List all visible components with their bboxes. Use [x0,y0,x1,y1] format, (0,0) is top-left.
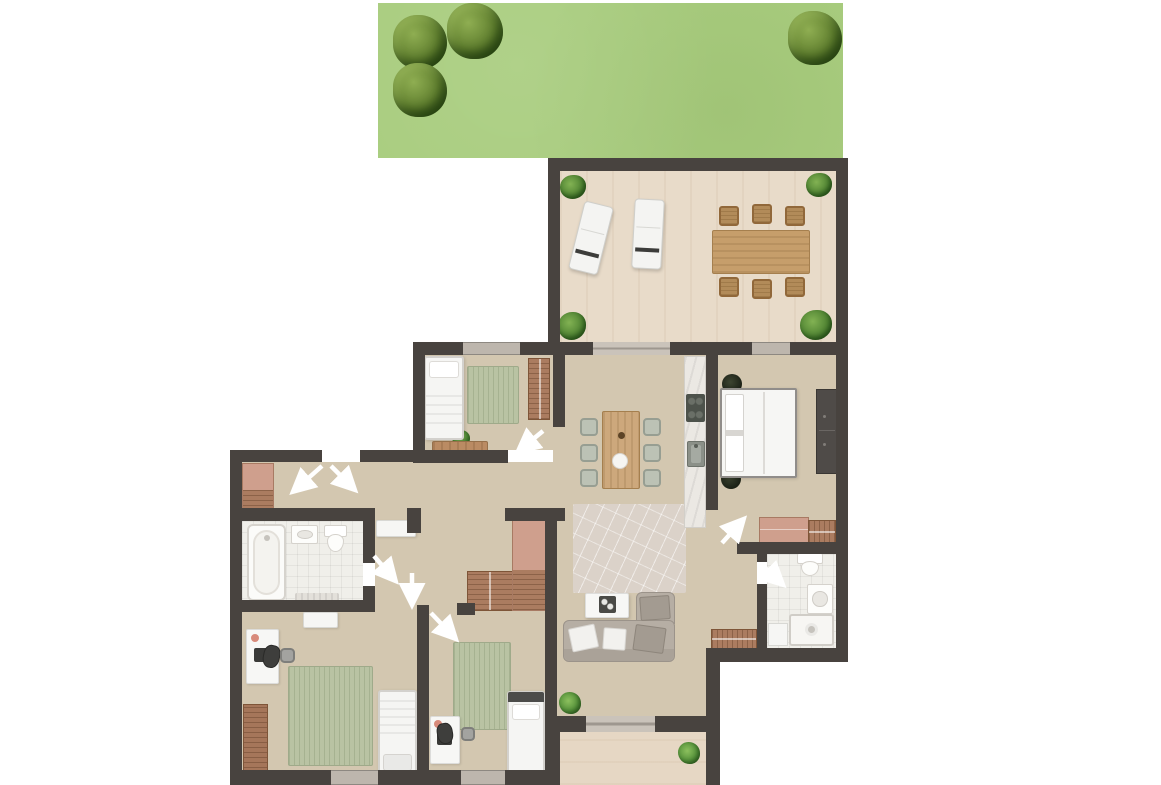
wall [230,450,242,785]
master-wardrobe [816,389,838,474]
bedroom3-bin [461,727,475,741]
coffee-table-tray [599,596,616,613]
sofa-cushion [639,595,671,621]
wall [548,158,848,171]
bedroom1-wardrobe [528,358,550,420]
wall [836,158,848,662]
bedroom2-bench [303,612,338,628]
wall [413,342,425,457]
bathroom2-cabinet [768,623,788,646]
living-plant [559,692,581,714]
bedroom3-rug [453,642,511,730]
wall [407,508,421,533]
sofa-cushion [632,624,666,654]
terrace-chair [719,206,739,226]
wall [457,603,475,615]
bath2-hall-floor [706,510,757,648]
terrace-dining-table [712,230,810,274]
bathroom1-toilet [324,525,347,552]
terrace-sliding-door [593,342,670,355]
terrace-chair [785,206,805,226]
hall-sideboard [711,629,757,649]
hallway-floor [242,462,553,508]
dining-chair [580,444,598,462]
dining-chair [643,418,661,436]
master-bedroom-window [752,342,790,355]
dining-table [602,411,640,489]
terrace-chair [719,277,739,297]
floor-plan [0,0,1161,785]
wall [737,542,848,554]
kitchen-sink [687,441,705,467]
terrace-chair [752,204,772,224]
entry-sliding-door [586,716,655,732]
bedroom2-window [331,770,378,785]
entry-plant [678,742,700,764]
master-dresser-side [808,520,836,543]
bedroom3-bed [507,691,545,777]
shower [789,614,834,646]
dining-chair [580,418,598,436]
terrace-chair [785,277,805,297]
wall [230,600,375,612]
bathtub [247,524,286,601]
living-rug [573,504,686,593]
wall [706,342,718,510]
master-dresser [759,517,809,543]
garden-tree [788,11,842,65]
bedroom2-bed [378,690,417,776]
wall [230,770,331,785]
terrace-chair [752,279,772,299]
wall [553,342,565,427]
bathroom2-sink [807,584,833,614]
wall [545,508,557,770]
sofa-cushion [602,627,626,651]
bedroom1-window [463,342,520,355]
dining-chair [580,469,598,487]
wall [230,508,371,521]
dining-chair [643,469,661,487]
sun-lounger [631,198,665,269]
bedroom2-bin [280,648,295,663]
wall [230,450,322,462]
dining-chair [643,444,661,462]
wall [757,554,767,562]
wall [790,342,848,355]
wall [417,605,429,770]
bedroom2-rug [288,666,373,766]
master-bed [720,388,797,478]
wall [548,158,560,355]
bathroom2-toilet [797,553,823,576]
wall [706,648,848,662]
hallway-wardrobe [242,463,274,512]
bedroom1-bed [424,356,464,440]
wall [378,770,461,785]
bedroom1-rug [467,366,519,424]
wall [363,508,375,563]
wall [413,450,508,463]
bathroom1-sink [291,525,318,544]
garden-tree [393,63,447,117]
wall [757,584,767,648]
bedroom3-window [461,770,505,785]
wall [655,716,712,732]
garden-tree [447,3,503,59]
cooktop [686,394,705,422]
bedroom2-dresser [243,704,268,774]
garden-tree [393,15,447,69]
